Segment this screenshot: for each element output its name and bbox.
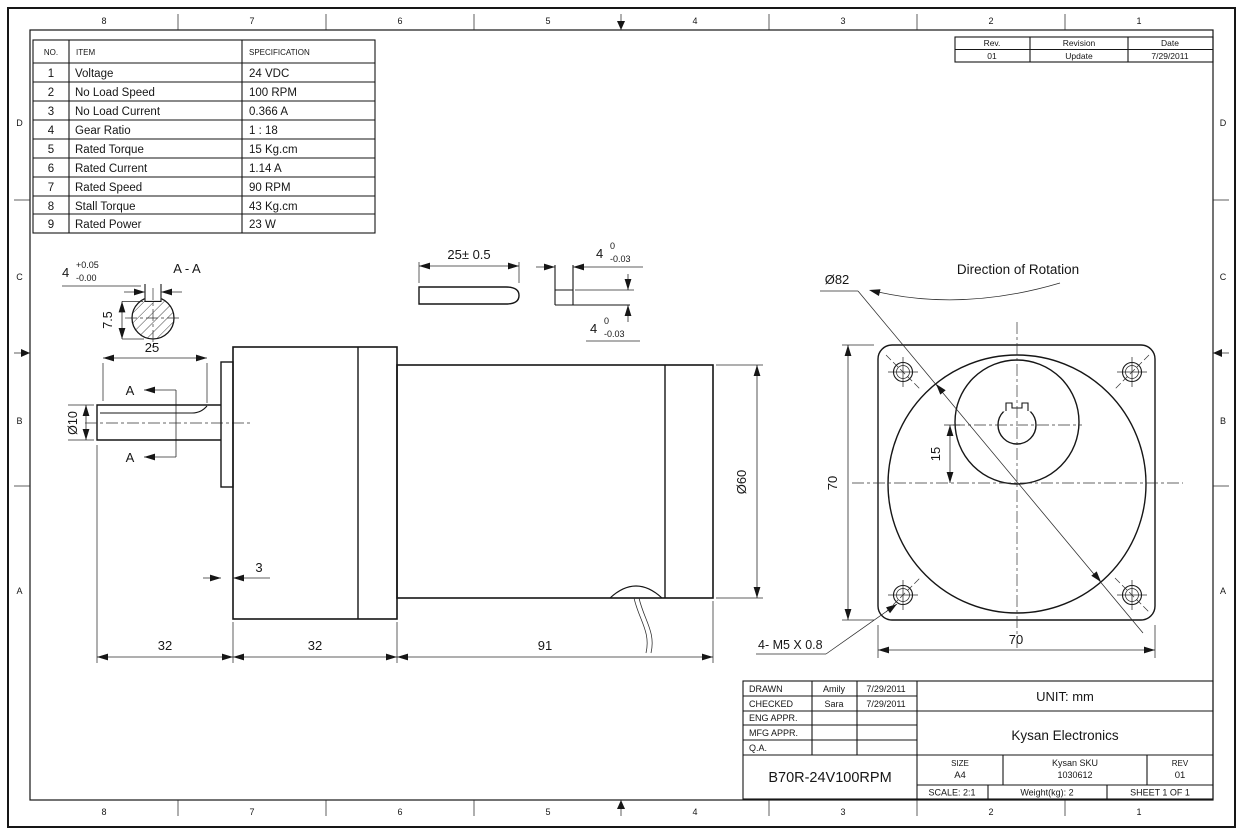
spec-cell: 3 [48, 106, 54, 118]
dim-keyway-width-nominal: 4 [62, 265, 69, 280]
spec-header-spec: SPECIFICATION [249, 48, 310, 57]
dim-face-circle-group: Ø82 [820, 272, 1143, 633]
dim-shaft-length-group: 25 [103, 340, 207, 403]
approval-name: Amily [823, 684, 845, 694]
dim-key-length-group: 25± 0.5 [419, 247, 519, 283]
grid-row-label: B [16, 416, 22, 426]
dim-flange-height-group: 70 [825, 345, 874, 620]
dim-shaft-offset: 15 [928, 447, 943, 461]
approval-role: Q.A. [749, 743, 767, 753]
spec-cell: Rated Power [75, 219, 142, 231]
dim-face-circle-diameter: Ø82 [825, 272, 850, 287]
grid-col-label: 8 [101, 16, 106, 26]
dim-key-height-group: 4 0 -0.03 [586, 274, 640, 341]
section-mark-a-bottom: A [126, 450, 135, 465]
grid-col-label: 1 [1136, 16, 1141, 26]
dim-key-length: 25± 0.5 [447, 247, 490, 262]
size-label: SIZE [951, 759, 969, 768]
approval-rows: DRAWN Amily 7/29/2011 CHECKED Sara 7/29/… [749, 684, 906, 753]
spec-cell: Rated Speed [75, 182, 142, 194]
grid-col-label: 7 [249, 16, 254, 26]
spec-cell: Voltage [75, 68, 113, 80]
dim-shaft-offset-group: 15 [928, 425, 960, 483]
front-boss [221, 362, 233, 487]
lead-wire [634, 598, 647, 653]
spec-cell: 0.366 A [249, 106, 288, 118]
part-number: B70R-24V100RPM [768, 770, 891, 786]
engineering-drawing-sheet: 8 7 6 5 4 3 2 1 8 7 6 5 4 3 2 1 D C B A … [0, 0, 1243, 835]
sheet-label: SHEET 1 OF 1 [1130, 788, 1190, 798]
dim-key-height-nominal: 4 [590, 321, 597, 336]
section-aa-detail: 4 +0.05 -0.00 A - A 7.5 25 A A [62, 260, 207, 465]
rotation-arrow-arc [874, 283, 1060, 300]
mounting-flange [878, 345, 1155, 620]
spec-cell: Rated Current [75, 163, 148, 175]
spec-header-no: NO. [44, 48, 58, 57]
approval-role: ENG APPR. [749, 713, 798, 723]
rotation-annotation: Direction of Rotation [869, 262, 1079, 300]
approval-role: CHECKED [749, 699, 794, 709]
spec-cell: No Load Current [75, 106, 161, 118]
spec-cell: 5 [48, 144, 54, 156]
dim-flange-width: 70 [1009, 632, 1023, 647]
dim-key-height-lower-tol: -0.03 [604, 329, 625, 339]
weight-label: Weight(kg): 2 [1020, 788, 1073, 798]
dim-keyway-width-lower-tol: -0.00 [76, 273, 97, 283]
rev-cell: Update [1065, 51, 1093, 61]
grid-col-label: 1 [1136, 807, 1141, 817]
grid-row-label: A [16, 586, 22, 596]
dim-length-chain: 32 32 91 [97, 445, 713, 663]
dim-shaft-diameter-group: Ø10 [66, 405, 94, 440]
dim-motor-diameter-group: Ø60 [716, 365, 763, 598]
grid-col-label: 5 [545, 807, 550, 817]
grid-row-label: D [16, 118, 23, 128]
dim-keyway-width-upper-tol: +0.05 [76, 260, 99, 270]
dim-motor-diameter: Ø60 [734, 470, 749, 495]
mounting-holes-label: 4- M5 X 0.8 [758, 638, 823, 652]
rev-value: 01 [1175, 770, 1186, 781]
spec-cell: Gear Ratio [75, 125, 131, 137]
dim-motor-length: 91 [538, 638, 552, 653]
key-plan-outline [419, 287, 519, 304]
dim-key-width-group: 4 0 -0.03 [536, 241, 643, 267]
spec-cell: 7 [48, 182, 54, 194]
grid-col-label: 5 [545, 16, 550, 26]
dim-key-width-upper-tol: 0 [610, 241, 615, 251]
grid-col-label: 8 [101, 807, 106, 817]
spec-cell: 90 RPM [249, 182, 291, 194]
dim-shaft-diameter: Ø10 [66, 411, 80, 435]
mounting-hole [886, 355, 920, 389]
rev-cell: 7/29/2011 [1151, 51, 1188, 61]
spec-table: NO. ITEM SPECIFICATION 1Voltage24 VDC 2N… [33, 40, 375, 233]
spec-cell: 100 RPM [249, 87, 297, 99]
key-section-outline [555, 265, 634, 305]
company-name: Kysan Electronics [1011, 728, 1119, 743]
spec-cell: 1 [48, 68, 54, 80]
dim-keyway-depth: 7.5 [101, 311, 115, 328]
spec-cell: 8 [48, 201, 54, 213]
section-aa-label: A - A [173, 261, 201, 276]
grid-col-label: 4 [692, 16, 697, 26]
rev-label: REV [1172, 759, 1189, 768]
rotation-arrow-head-icon [869, 289, 881, 296]
dim-key-width-lower-tol: -0.03 [610, 254, 631, 264]
mounting-holes-callout: 4- M5 X 0.8 [756, 604, 897, 654]
spec-cell: 4 [48, 125, 55, 137]
rev-header: Revision [1063, 38, 1096, 48]
sku-value: 1030612 [1057, 770, 1092, 780]
dim-key-height-upper-tol: 0 [604, 316, 609, 326]
key-detail: 25± 0.5 4 0 -0.03 4 0 -0.03 [419, 241, 643, 341]
motor-front-view: 70 70 15 Ø82 Direction of Rotation 4- M5… [756, 262, 1183, 658]
grid-col-label: 2 [988, 16, 993, 26]
spec-cell: 23 W [249, 219, 276, 231]
dim-key-width-nominal: 4 [596, 246, 603, 261]
grid-row-label: C [1220, 272, 1227, 282]
scale-label: SCALE: 2:1 [928, 788, 975, 798]
rev-header: Date [1161, 38, 1179, 48]
motor-side-view: 3 32 32 91 Ø60 [85, 347, 763, 663]
shaft-keyway-line [100, 406, 207, 413]
spec-cell: 24 VDC [249, 68, 289, 80]
rev-cell: 01 [987, 51, 997, 61]
sku-label: Kysan SKU [1052, 758, 1098, 768]
spec-cell: 1 : 18 [249, 125, 278, 137]
dim-flange-width-group: 70 [878, 625, 1155, 658]
approval-role: DRAWN [749, 684, 783, 694]
lead-wire [639, 598, 652, 653]
spec-table-rows: 1Voltage24 VDC 2No Load Speed100 RPM 3No… [48, 68, 298, 231]
size-value: A4 [954, 770, 966, 781]
mounting-hole [1115, 578, 1149, 612]
section-cut-marks: A A [126, 383, 176, 465]
grid-col-label: 4 [692, 807, 697, 817]
dim-gearbox-length: 32 [308, 638, 322, 653]
grid-row-label: B [1220, 416, 1226, 426]
grid-col-label: 3 [840, 807, 845, 817]
approval-date: 7/29/2011 [866, 684, 905, 694]
spec-header-item: ITEM [76, 48, 95, 57]
dim-boss-thickness: 3 [255, 560, 262, 575]
spec-cell: 1.14 A [249, 163, 282, 175]
approval-role: MFG APPR. [749, 728, 798, 738]
title-block: DRAWN Amily 7/29/2011 CHECKED Sara 7/29/… [743, 681, 1213, 799]
spec-cell: 43 Kg.cm [249, 201, 298, 213]
spec-cell: Rated Torque [75, 144, 144, 156]
unit-label: UNIT: mm [1036, 689, 1094, 704]
spec-cell: 2 [48, 87, 54, 99]
grid-row-label: C [16, 272, 23, 282]
spec-cell: Stall Torque [75, 201, 136, 213]
grid-col-label: 3 [840, 16, 845, 26]
rotation-label: Direction of Rotation [957, 262, 1079, 277]
grid-col-label: 6 [397, 16, 402, 26]
grid-col-label: 2 [988, 807, 993, 817]
grid-col-label: 7 [249, 807, 254, 817]
mounting-hole [1115, 355, 1149, 389]
spec-cell: 15 Kg.cm [249, 144, 298, 156]
approval-date: 7/29/2011 [866, 699, 905, 709]
spec-cell: 6 [48, 163, 54, 175]
grid-col-label: 6 [397, 807, 402, 817]
dim-shaft-length: 25 [145, 340, 159, 355]
grid-row-label: D [1220, 118, 1227, 128]
rev-header: Rev. [984, 38, 1001, 48]
spec-cell: No Load Speed [75, 87, 155, 99]
sheet-border: 8 7 6 5 4 3 2 1 8 7 6 5 4 3 2 1 D C B A … [8, 8, 1235, 827]
grid-row-label: A [1220, 586, 1226, 596]
dim-boss-group: 3 [203, 560, 270, 578]
grid-row-labels: D C B A D C B A [16, 118, 1227, 596]
approval-name: Sara [824, 699, 843, 709]
dim-flange-height: 70 [825, 476, 840, 490]
spec-cell: 9 [48, 219, 54, 231]
dim-shaft-extension: 32 [158, 638, 172, 653]
revision-table: Rev. Revision Date 01 Update 7/29/2011 [955, 37, 1213, 62]
wire-grommet [610, 586, 662, 598]
section-mark-a-top: A [126, 383, 135, 398]
